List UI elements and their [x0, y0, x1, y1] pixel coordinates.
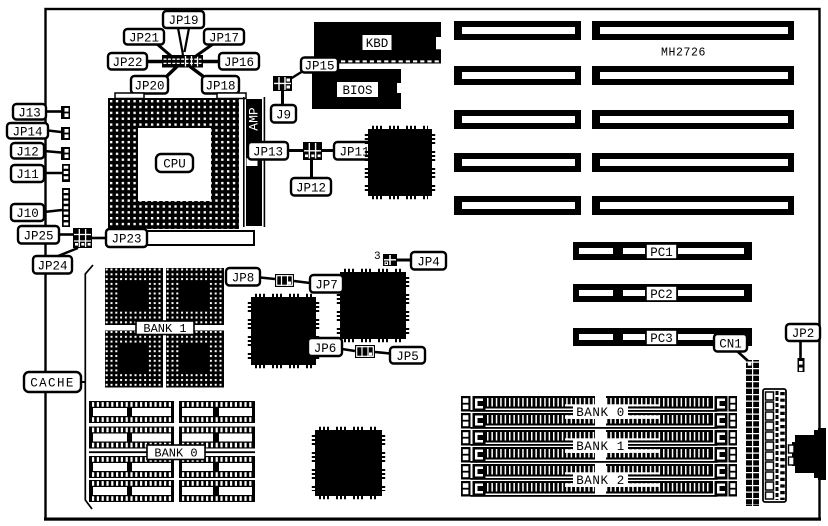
svg-text:3: 3	[374, 251, 381, 263]
svg-text:JP16: JP16	[224, 56, 254, 70]
svg-text:BANK 1: BANK 1	[576, 440, 625, 454]
svg-text:J13: J13	[18, 107, 41, 121]
svg-text:BANK 0: BANK 0	[576, 406, 625, 420]
svg-text:AMP: AMP	[247, 107, 262, 131]
svg-text:MH2726: MH2726	[661, 47, 706, 60]
svg-text:JP13: JP13	[253, 146, 283, 160]
svg-text:CACHE: CACHE	[30, 377, 75, 391]
svg-text:BANK 1: BANK 1	[143, 322, 186, 336]
svg-text:J9: J9	[276, 109, 291, 123]
svg-text:JP22: JP22	[112, 56, 142, 70]
svg-text:KBD: KBD	[366, 37, 389, 51]
svg-text:JP5: JP5	[396, 350, 419, 364]
svg-text:J10: J10	[16, 207, 39, 221]
svg-text:JP7: JP7	[315, 279, 338, 293]
svg-text:JP6: JP6	[314, 342, 337, 356]
svg-text:PC1: PC1	[650, 246, 673, 260]
svg-text:JP24: JP24	[37, 260, 67, 274]
svg-text:JP12: JP12	[296, 182, 326, 196]
svg-text:CPU: CPU	[163, 158, 186, 172]
svg-text:JP17: JP17	[209, 32, 239, 46]
svg-text:CN1: CN1	[719, 338, 742, 352]
svg-text:JP15: JP15	[304, 60, 334, 74]
svg-text:JP21: JP21	[129, 32, 159, 46]
svg-text:PC2: PC2	[650, 288, 673, 302]
svg-text:JP2: JP2	[792, 327, 815, 341]
svg-text:BIOS: BIOS	[342, 84, 372, 98]
svg-text:JP18: JP18	[205, 80, 235, 94]
svg-text:JP14: JP14	[12, 126, 42, 140]
svg-text:J12: J12	[16, 146, 39, 160]
svg-text:BANK 2: BANK 2	[576, 474, 625, 488]
svg-text:JP19: JP19	[168, 14, 198, 28]
svg-text:JP20: JP20	[134, 80, 164, 94]
svg-text:JP25: JP25	[23, 230, 53, 244]
svg-text:JP23: JP23	[111, 233, 141, 247]
svg-text:JP8: JP8	[232, 272, 255, 286]
svg-text:BANK 0: BANK 0	[154, 447, 197, 461]
svg-text:PC3: PC3	[650, 332, 673, 346]
svg-text:JP4: JP4	[417, 256, 440, 270]
svg-text:J11: J11	[16, 168, 39, 182]
